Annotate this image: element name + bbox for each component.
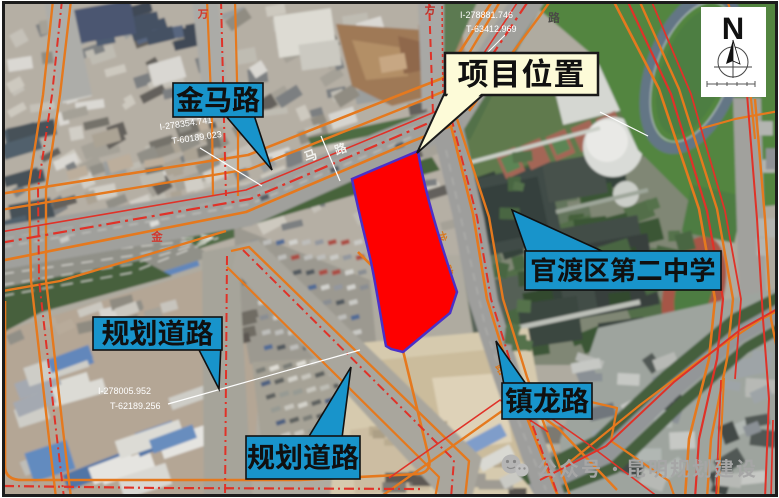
svg-text:I-278005.952: I-278005.952 [98,386,151,396]
svg-text:T-62189.256: T-62189.256 [110,401,161,411]
svg-text:I-278881.746: I-278881.746 [460,10,513,20]
svg-text:T-63412.969: T-63412.969 [466,24,517,34]
